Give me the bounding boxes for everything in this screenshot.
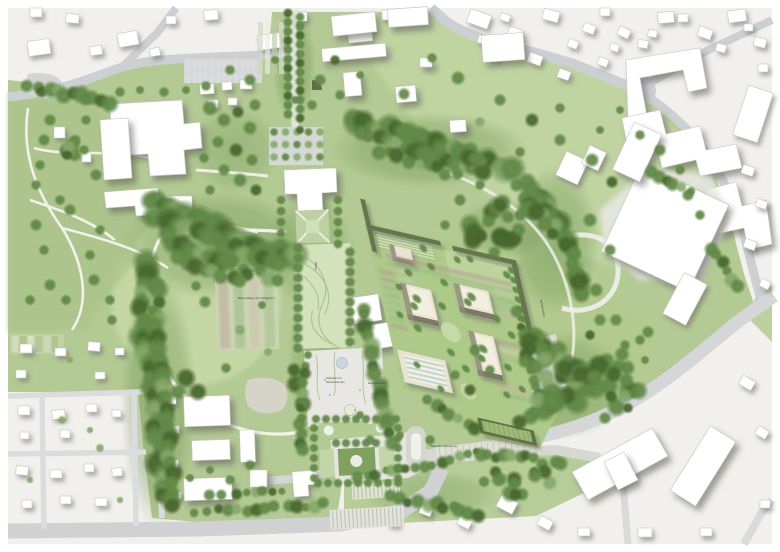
svg-text:Wiese: Wiese <box>314 262 318 271</box>
svg-text:Parkplatz (Reserve): Parkplatz (Reserve) <box>430 444 457 448</box>
svg-text:Haupteingang: Haupteingang <box>368 381 387 385</box>
svg-text:Sitzelementen: Sitzelementen <box>326 380 345 384</box>
svg-text:Baumpflege und Heilgarten: Baumpflege und Heilgarten <box>238 296 275 300</box>
